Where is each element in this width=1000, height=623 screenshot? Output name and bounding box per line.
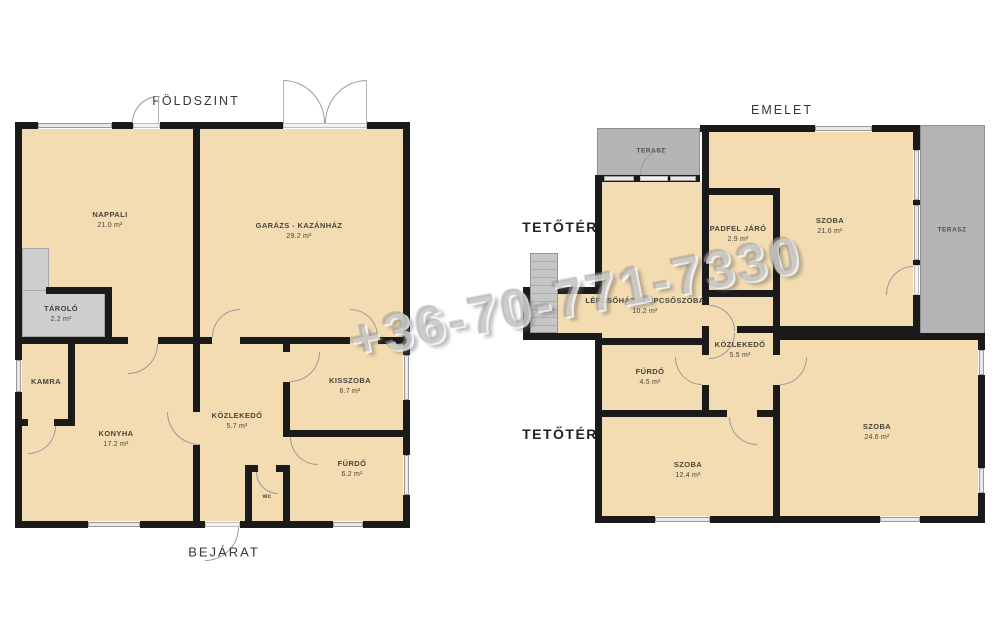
wall (15, 521, 88, 528)
wall (15, 122, 22, 360)
room-area: 21.0 m² (92, 220, 127, 230)
room-name: SZOBA (816, 216, 844, 225)
wall (920, 516, 985, 523)
wall (773, 385, 780, 523)
room-label-kisszoba: KISSZOBA 6.7 m² (329, 376, 371, 396)
room-name: FÜRDŐ (636, 367, 665, 376)
room-name: KÖZLEKEDŐ (715, 340, 766, 349)
room-area: 12.4 m² (674, 470, 702, 480)
wall (105, 294, 112, 337)
room-label-garazs: GARÁZS - KAZÁNHÁZ 29.2 m² (256, 221, 343, 241)
wall (240, 521, 333, 528)
wall (702, 326, 709, 333)
door-arc (132, 96, 159, 123)
wall (158, 337, 212, 344)
room-label-furdo: FÜRDŐ 6.2 m² (338, 459, 367, 479)
room-area: 6.7 m² (329, 386, 371, 396)
room-name: TERASZ (938, 226, 967, 233)
room-name: KONYHA (99, 429, 134, 438)
wall (283, 465, 290, 521)
attic-label-top: TETŐTÉR (522, 219, 598, 235)
room-name: FÜRDŐ (338, 459, 367, 468)
wall (595, 516, 655, 523)
room-area: 2.2 m² (44, 314, 78, 324)
room-area: 4.5 m² (636, 377, 665, 387)
door-sill (283, 123, 367, 128)
storage-gray-area (22, 248, 49, 294)
window (16, 360, 21, 392)
wall (602, 338, 702, 345)
room-name: KAMRA (31, 377, 61, 386)
window (914, 205, 919, 260)
wall (112, 122, 133, 129)
window (88, 522, 140, 527)
wall (68, 344, 75, 419)
window (880, 517, 920, 522)
room-area: 5.7 m² (212, 421, 263, 431)
room-label-terasz-r: TERASZ (938, 225, 967, 234)
wall (276, 465, 283, 472)
wall (15, 392, 22, 528)
door-sill (133, 123, 160, 128)
wall (403, 495, 410, 528)
wall (757, 410, 780, 417)
wall (240, 337, 350, 344)
room-label-furdo-2: FÜRDŐ 4.5 m² (636, 367, 665, 387)
window (333, 522, 363, 527)
window (979, 468, 984, 493)
door-sill (914, 265, 919, 295)
room-label-kozlekedo: KÖZLEKEDŐ 5.7 m² (212, 411, 263, 431)
upper-floor-area (913, 340, 978, 516)
window (914, 150, 919, 200)
wall (403, 400, 410, 455)
wall (15, 337, 128, 344)
wall (193, 445, 200, 521)
room-label-szoba-246: SZOBA 24.6 m² (863, 422, 891, 442)
wall (978, 340, 985, 350)
wall (245, 465, 252, 521)
room-label-terasz-tl: TERASZ (637, 146, 666, 155)
window (815, 126, 872, 131)
wall (702, 333, 709, 355)
wall (283, 344, 290, 352)
room-area: 6.2 m² (338, 469, 367, 479)
floor-plan-image: FÖLDSZINT (0, 0, 1000, 623)
wall (595, 410, 727, 417)
wall (773, 297, 780, 355)
room-name: KÖZLEKEDŐ (212, 411, 263, 420)
room-area: 29.2 m² (256, 231, 343, 241)
wall (872, 125, 920, 132)
wall (283, 382, 290, 437)
window (404, 355, 409, 400)
wall (54, 419, 75, 426)
attic-label-bottom: TETŐTÉR (522, 426, 598, 442)
door-arc (325, 80, 367, 123)
room-name: GARÁZS - KAZÁNHÁZ (256, 221, 343, 230)
wall (46, 287, 112, 294)
wall (193, 129, 200, 344)
window (979, 350, 984, 375)
entrance-label: BEJÁRAT (188, 545, 260, 560)
room-area: 21.6 m² (816, 226, 844, 236)
door-sill (640, 176, 668, 181)
wall (913, 132, 920, 150)
upper-floor-title: EMELET (751, 103, 813, 117)
room-area: 24.6 m² (863, 432, 891, 442)
wall (290, 430, 403, 437)
room-label-kozlekedo-2: KÖZLEKEDŐ 5.5 m² (715, 340, 766, 360)
room-area: 17.2 m² (99, 439, 134, 449)
wall (710, 516, 880, 523)
window (38, 123, 112, 128)
room-name: TÁROLÓ (44, 304, 78, 313)
wall (978, 375, 985, 468)
window (655, 517, 710, 522)
wall (978, 493, 985, 523)
room-name: KISSZOBA (329, 376, 371, 385)
room-area: 5.5 m² (715, 350, 766, 360)
room-name: SZOBA (674, 460, 702, 469)
room-label-tarolo: TÁROLÓ 2.2 m² (44, 304, 78, 324)
room-label-konyha: KONYHA 17.2 m² (99, 429, 134, 449)
wall (913, 295, 920, 340)
wall (140, 521, 205, 528)
wall (160, 122, 283, 129)
room-label-nappali: NAPPALI 21.0 m² (92, 210, 127, 230)
wall (15, 419, 28, 426)
wall (737, 326, 913, 333)
wall (700, 125, 815, 132)
window (604, 176, 634, 181)
ground-floor-title: FÖLDSZINT (152, 94, 239, 108)
room-name: TERASZ (637, 147, 666, 154)
room-name: SZOBA (863, 422, 891, 431)
window (670, 176, 696, 181)
window (404, 455, 409, 495)
wall (702, 188, 780, 195)
door-arc (283, 80, 325, 123)
room-label-szoba-216: SZOBA 21.6 m² (816, 216, 844, 236)
room-name: wc (263, 494, 272, 500)
wall (193, 344, 200, 412)
room-label-wc: wc (263, 493, 272, 501)
room-label-kamra: KAMRA (31, 377, 61, 388)
wall (252, 465, 258, 472)
room-label-szoba-124: SZOBA 12.4 m² (674, 460, 702, 480)
room-name: NAPPALI (92, 210, 127, 219)
wall (780, 333, 985, 340)
